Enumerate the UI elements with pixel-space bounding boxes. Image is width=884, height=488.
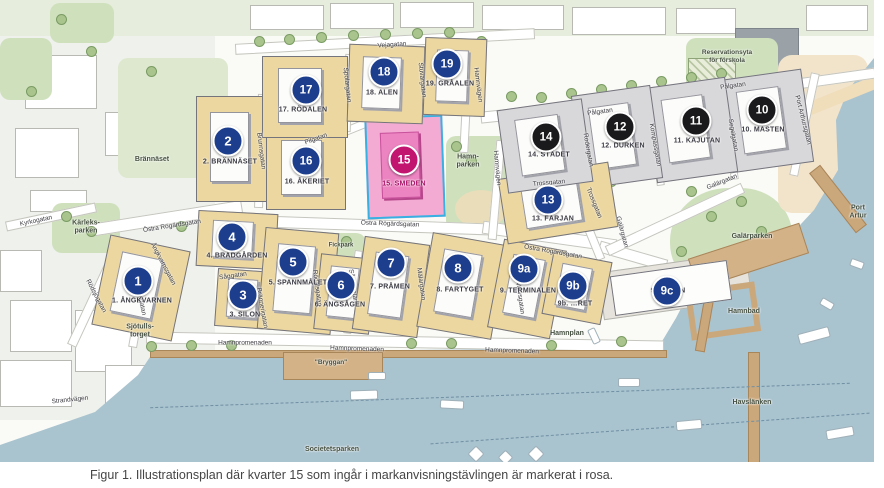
block-17-marker: 17 [291, 75, 322, 106]
background-building [572, 7, 666, 35]
area-label: Kärleks- parken [72, 220, 100, 237]
tree [86, 46, 97, 57]
block-16-marker: 16 [291, 146, 322, 177]
block-13-label: 13. FÄRJAN [532, 216, 574, 223]
tree [146, 66, 157, 77]
block-19-marker: 19 [432, 49, 463, 80]
tree [406, 338, 417, 349]
background-building [330, 3, 394, 29]
block-9b-label: 9b. …RET [558, 301, 593, 308]
block-10-marker: 10 [747, 95, 778, 126]
tree [316, 32, 327, 43]
area-label: Reservationsyta för förskola [702, 49, 752, 65]
area-label: Brännäset [135, 156, 169, 164]
area-label: Fickpark [329, 242, 354, 249]
block-1-label: 1. ÅNGKVARNEN [112, 298, 172, 305]
block-5-label: 5. SPANNMÅLET [269, 280, 327, 287]
background-building [400, 2, 474, 28]
tree [56, 14, 67, 25]
area-label: Societetsparken [305, 446, 359, 454]
tree [506, 91, 517, 102]
background-building [10, 300, 72, 352]
block-16-label: 16. ÅKERIET [285, 179, 330, 186]
boat [368, 372, 386, 380]
tree [536, 92, 547, 103]
tree [446, 338, 457, 349]
area-label: Hamnbad [728, 308, 760, 316]
boat [350, 390, 378, 401]
boat [440, 399, 464, 409]
area-label: Sjötulls- torget [126, 324, 154, 341]
block-13-marker: 13 [533, 185, 564, 216]
tree [706, 211, 717, 222]
block-14-label: 14. STÄDET [528, 152, 570, 159]
tree [616, 336, 627, 347]
figure-page: VejagatanPilgatanPålgatanPålgatanTrossga… [0, 0, 884, 488]
tree [736, 196, 747, 207]
background-building [250, 5, 324, 30]
area-label: Hamn- parken [457, 154, 480, 171]
block-15-marker: 15 [389, 145, 420, 176]
boardwalk [150, 350, 667, 358]
tree [676, 246, 687, 257]
tree [61, 211, 72, 222]
block-7-label: 7. PRÅMEN [370, 284, 410, 291]
background-building [806, 5, 868, 31]
block-19-label: 19. GRÅALEN [426, 81, 475, 88]
block-4-marker: 4 [217, 222, 248, 253]
tree [686, 186, 697, 197]
tree [348, 30, 359, 41]
block-9a-label: 9. TERMINALEN [500, 288, 556, 295]
block-7-marker: 7 [376, 248, 407, 279]
area-label: "Bryggan" [315, 359, 348, 367]
block-11-marker: 11 [681, 106, 712, 137]
block-3-marker: 3 [228, 280, 259, 311]
block-5-marker: 5 [278, 247, 309, 278]
area-label: Galärparken [732, 233, 773, 241]
tree [451, 141, 462, 152]
block-18-label: 18. ALEN [366, 90, 398, 97]
block-18-marker: 18 [369, 57, 400, 88]
background-building [0, 250, 42, 292]
block-12-label: 12. DURKEN [601, 143, 645, 150]
background-building [15, 128, 79, 178]
block-9a-marker: 9a [509, 254, 540, 285]
background-building [482, 5, 564, 30]
street-label: Hamnpromenaden [218, 340, 272, 347]
block-4-label: 4. BRÄDGÅRDEN [207, 253, 268, 260]
block-14-marker: 14 [531, 122, 562, 153]
boat [618, 378, 640, 387]
block-2-label: 2. BRÄNNÄSET [203, 159, 257, 166]
block-11-label: 11. KAJUTAN [674, 138, 720, 145]
tree [146, 341, 157, 352]
tree [444, 27, 455, 38]
block-3-label: 3. SILON [230, 312, 261, 319]
block-9c-marker: 9c [652, 276, 683, 307]
illustration-plan-map: VejagatanPilgatanPålgatanPålgatanTrossga… [0, 0, 874, 462]
tree [284, 34, 295, 45]
block-8-label: 8. FARTYGET [436, 287, 483, 294]
block-2-marker: 2 [213, 126, 244, 157]
area-label: Hamnplan [550, 330, 584, 338]
block-1-marker: 1 [123, 266, 154, 297]
block-6-label: 6. ÄNGSÅGEN [315, 302, 365, 309]
block-15-label: 15. SMEDEN [382, 181, 426, 188]
tree [26, 86, 37, 97]
tree [254, 36, 265, 47]
tree [380, 29, 391, 40]
block-8-marker: 8 [443, 253, 474, 284]
figure-caption: Figur 1. Illustrationsplan där kvarter 1… [90, 468, 613, 482]
area-label: Havslänken [733, 399, 772, 407]
block-9b-marker: 9b [558, 271, 589, 302]
background-building [676, 8, 736, 34]
block-12-marker: 12 [605, 112, 636, 143]
block-17-label: 17. RÖDALEN [279, 107, 328, 114]
block-6-marker: 6 [326, 270, 357, 301]
tree [412, 28, 423, 39]
area-label: Port Artur [849, 205, 866, 222]
tree [546, 340, 557, 351]
tree [186, 340, 197, 351]
block-10-label: 10. MASTEN [741, 127, 784, 134]
